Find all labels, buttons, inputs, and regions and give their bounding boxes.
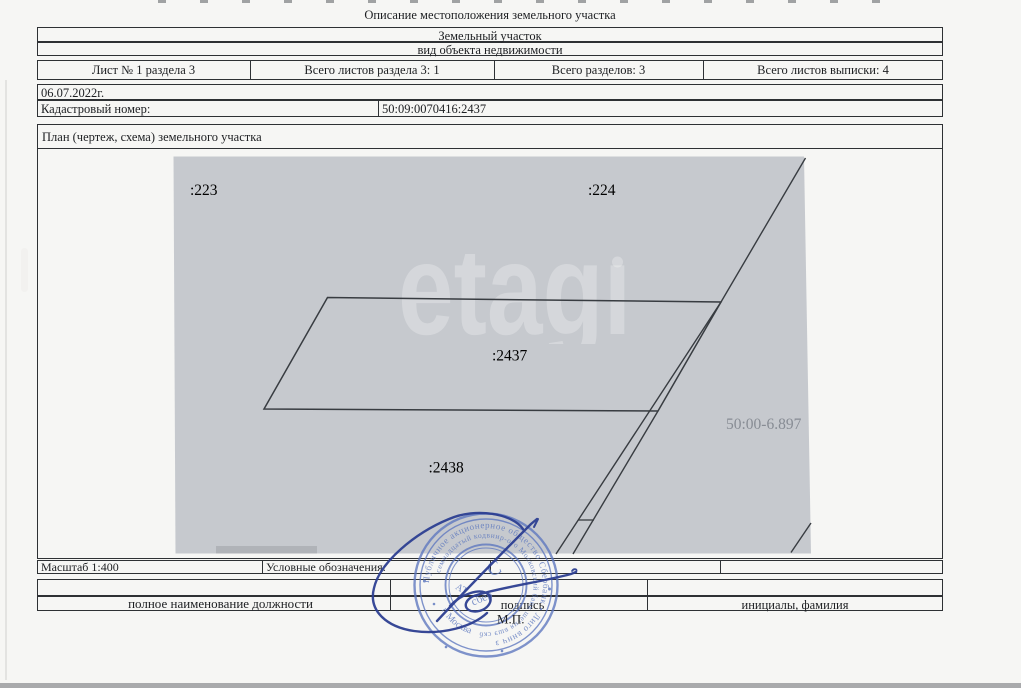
svg-text:М.П.: М.П. bbox=[497, 612, 524, 627]
